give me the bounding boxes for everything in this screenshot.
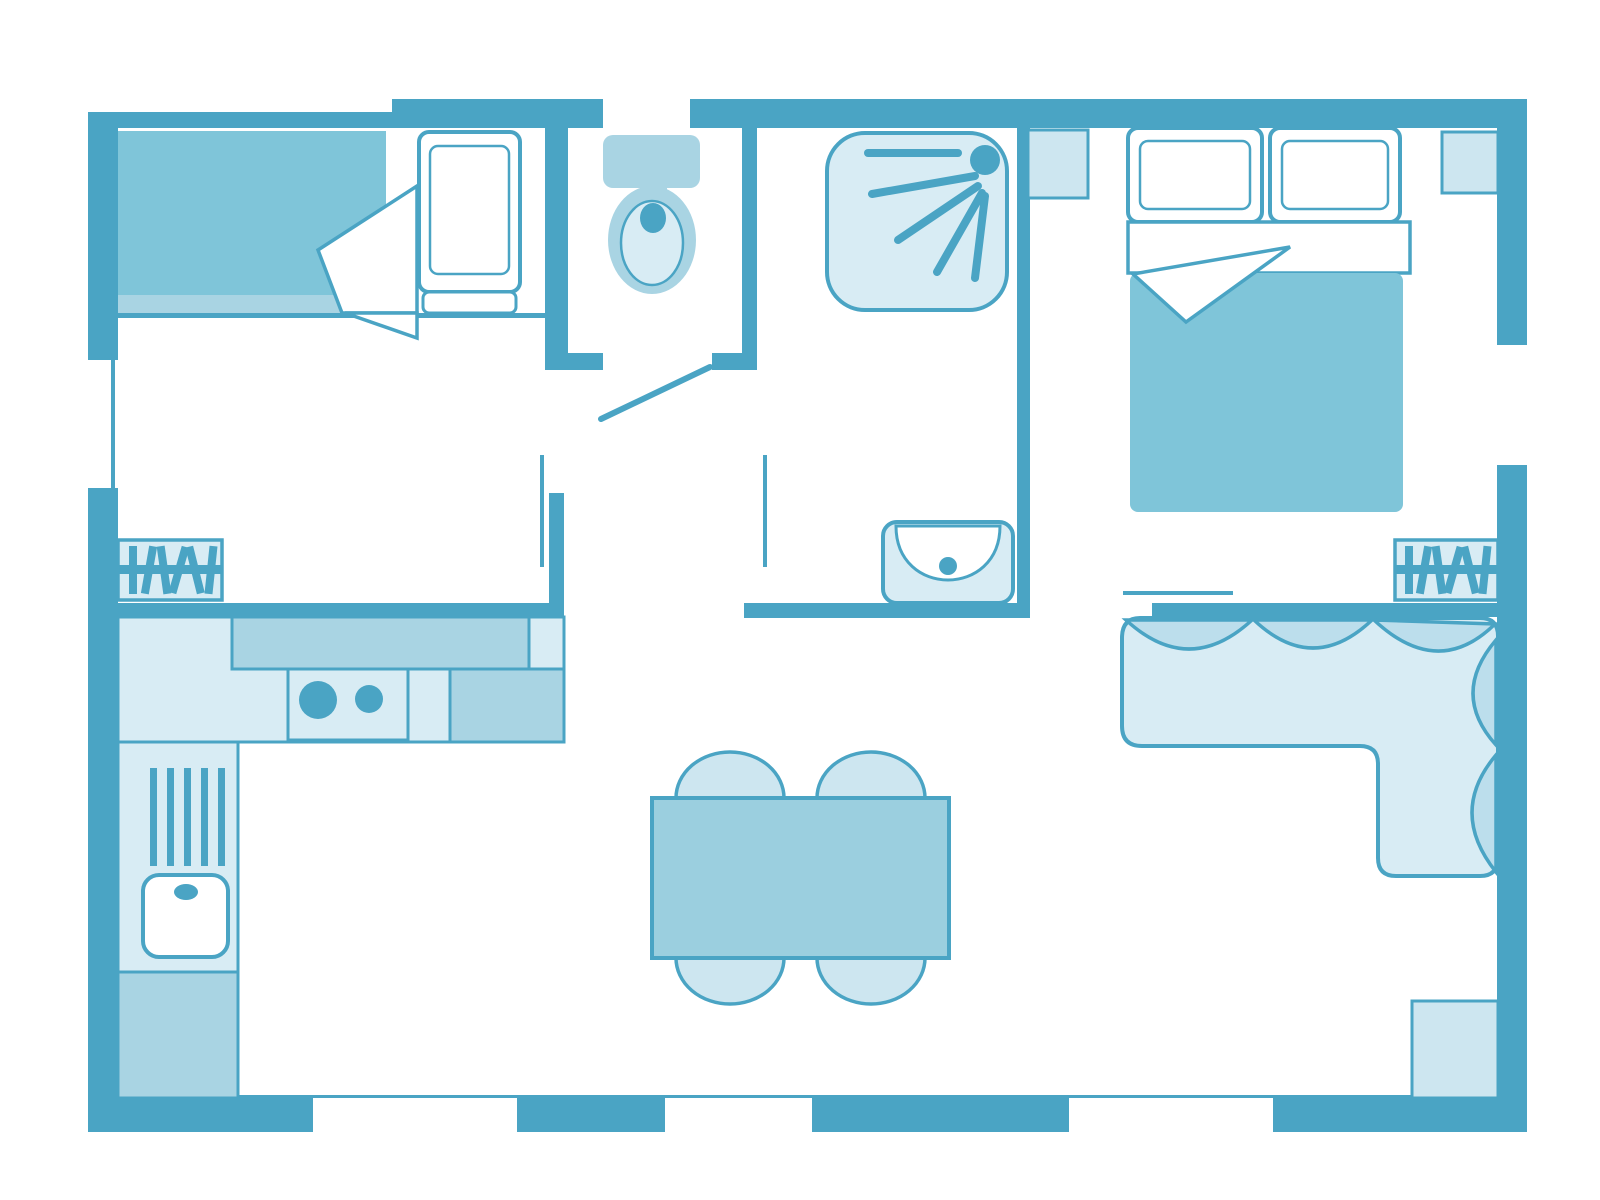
floor-edge-line-bottom [88,1095,1500,1098]
washbasin-drain-dot [939,557,957,575]
floor-plan-page [0,0,1600,1200]
single-bed-fold-lower [345,313,417,338]
wall-bottom-2 [517,1098,665,1132]
drainboard-bar-4 [201,768,208,866]
wall-right-lower [1497,465,1527,1132]
wall-bottom-1 [88,1098,313,1132]
door-leaf-bedroom1 [540,455,544,567]
wall-bottom-4 [1273,1098,1527,1132]
toilet-tank [603,135,700,188]
kitchen-sink-faucet [174,884,198,900]
wall-left-lower [88,488,118,1132]
wall-kitchen-top [118,603,564,617]
drainboard-bar-2 [167,768,174,866]
wc-door-leaf [601,367,710,419]
wall-top-right [690,99,1527,128]
wall-wc-right [742,128,757,370]
door-leaf-shower-room [763,455,767,567]
stove-burner-small [355,685,383,713]
window-line-left [111,360,115,488]
single-bed-pillow [419,132,520,292]
corner-cabinet [1412,1001,1498,1098]
wall-wc-bottom-left [545,353,603,370]
wall-top-left [88,112,392,128]
door-leaf-bedroom2 [1123,591,1233,595]
toilet-flush-dot [640,203,666,233]
wall-shower-right [1017,128,1030,618]
stove-burner-large [299,681,337,719]
floor-plan-canvas [0,0,1600,1200]
kitchen-fridge-block [118,972,238,1098]
wall-wc-left [545,128,568,370]
wardrobe-right-hanger-1 [1405,546,1413,594]
wall-kitchen-stub [549,493,564,617]
wall-wc-bottom-right [712,353,757,370]
dining-table [652,798,949,958]
bedside-table-right [1442,132,1498,193]
double-bed-sheet-band [1128,222,1410,273]
drainboard-bar-3 [184,768,191,866]
shower-head-icon [970,145,1000,175]
wall-right-upper [1497,99,1527,345]
bedside-table-left [1028,130,1088,198]
sofa-body [1122,618,1498,876]
kitchen-worktop-strip [232,617,529,669]
wall-left-upper [88,112,118,360]
single-bed-pillow-band [423,292,516,313]
wall-livingroom-top [1152,603,1500,617]
wall-top-mid [392,99,603,128]
kitchen-cabinet-block [450,669,564,742]
wall-bottom-3 [812,1098,1069,1132]
wall-shower-bottom [744,603,1030,618]
wardrobe-left-hanger-1 [129,546,137,594]
drainboard-bar-5 [218,768,225,866]
drainboard-bar-1 [150,768,157,866]
